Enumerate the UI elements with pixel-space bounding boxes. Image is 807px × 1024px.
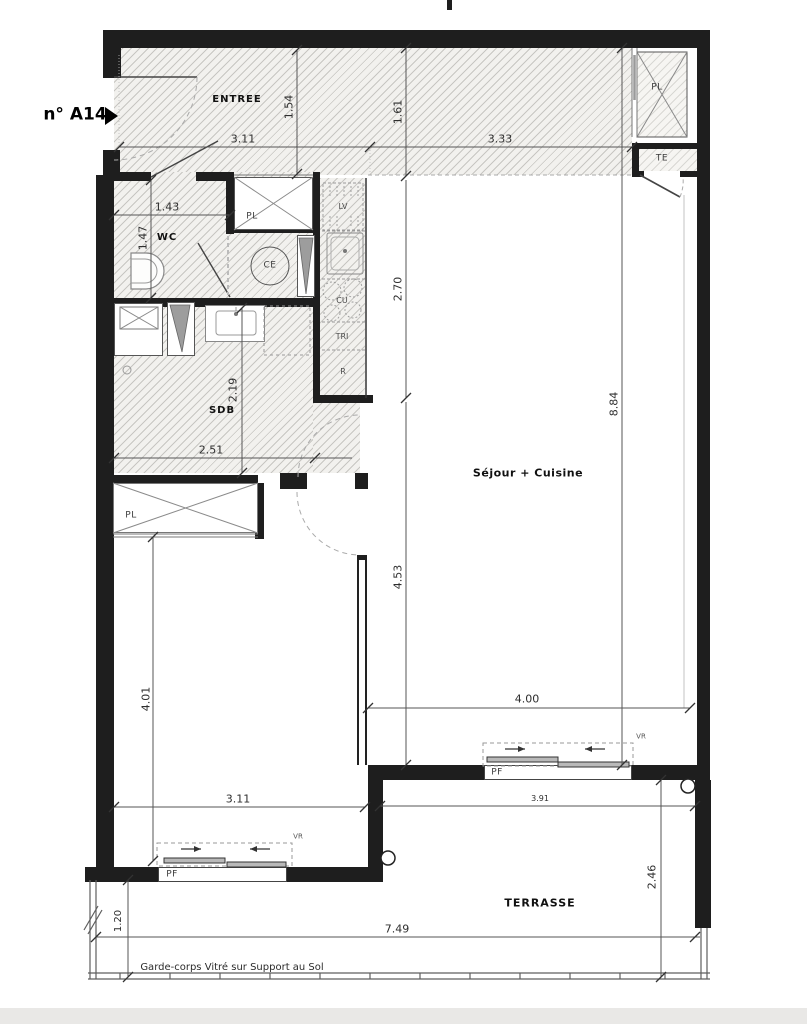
label-cu: CU <box>336 297 347 305</box>
label-te: TE <box>656 155 668 164</box>
dim-bedroom-height: 4.01 <box>141 687 152 712</box>
label-pl-bedroom: PL <box>125 512 136 521</box>
page-footer-band <box>0 1008 807 1024</box>
extension-lines <box>119 55 684 708</box>
dim-entree-depth: 1.54 <box>284 95 295 120</box>
label-lv: LV <box>338 203 347 211</box>
bedroom-door-swing <box>297 492 360 555</box>
dim-sdb-width: 2.51 <box>199 445 224 456</box>
dim-entree-width: 3.11 <box>231 134 256 145</box>
dim-wc-depth: 1.47 <box>138 226 149 251</box>
room-label-terrasse: TERRASSE <box>504 898 575 909</box>
dim-sdb-height: 2.19 <box>228 378 239 403</box>
bedroom-window <box>157 843 292 867</box>
shower-dashed-zone <box>264 306 310 355</box>
label-pl-top-right: PL <box>651 84 662 93</box>
label-pl-entry: PL <box>246 213 257 222</box>
unit-label: n° A14 <box>43 107 106 124</box>
floor-drain <box>123 366 131 374</box>
dim-bedroom-width: 3.11 <box>226 794 251 805</box>
wc-door <box>151 141 218 177</box>
dim-entree-right-depth: 1.61 <box>393 100 404 125</box>
label-tri: TRI <box>336 333 349 341</box>
label-pf-sejour: PF <box>491 769 503 778</box>
room-label-wc: WC <box>157 233 177 243</box>
closet-front-lines <box>113 48 637 537</box>
dim-sejour-lower-height: 4.53 <box>393 565 404 590</box>
label-pf-bedroom: PF <box>166 871 178 880</box>
railing-note: Garde-corps Vitré sur Support au Sol <box>140 963 323 973</box>
dimension-ticks <box>91 43 700 982</box>
plan-linework <box>0 0 807 1024</box>
label-ce: CE <box>264 262 277 271</box>
unit-pointer-icon <box>105 107 118 125</box>
dim-terrasse-width: 7.49 <box>385 924 410 935</box>
room-label-entree: ENTREE <box>212 95 261 105</box>
ce-door <box>198 236 230 297</box>
washbasin <box>216 307 256 335</box>
dimension-lines <box>96 48 700 977</box>
dim-terrasse-left-depth: 1.20 <box>114 910 124 932</box>
drain-circles <box>381 779 695 865</box>
room-label-sdb: SDB <box>209 406 235 416</box>
sejour-window <box>483 743 633 767</box>
dim-sejour-window-width: 4.00 <box>515 694 540 705</box>
room-label-sejour: Séjour + Cuisine <box>473 468 583 479</box>
dim-kitchen-height: 2.70 <box>393 277 404 302</box>
dim-entree-right-width: 3.33 <box>488 134 513 145</box>
sdb-door-swing <box>298 415 360 477</box>
dim-terrasse-right-depth: 2.46 <box>647 865 658 890</box>
entry-door <box>114 77 197 160</box>
label-vr-bedroom: VR <box>293 834 303 841</box>
dim-wc-width: 1.43 <box>155 202 180 213</box>
label-r: R <box>340 368 346 376</box>
floor-plan: n° A14 ENTREE WC SDB Séjour + Cuisine TE… <box>0 0 807 1024</box>
dim-sejour-height: 8.84 <box>609 392 620 417</box>
dim-terrasse-right-width: 3.91 <box>531 795 549 803</box>
toilet <box>131 253 164 289</box>
te-door <box>640 175 683 197</box>
kitchen-appliances <box>322 178 366 398</box>
label-vr-sejour: VR <box>636 734 646 741</box>
